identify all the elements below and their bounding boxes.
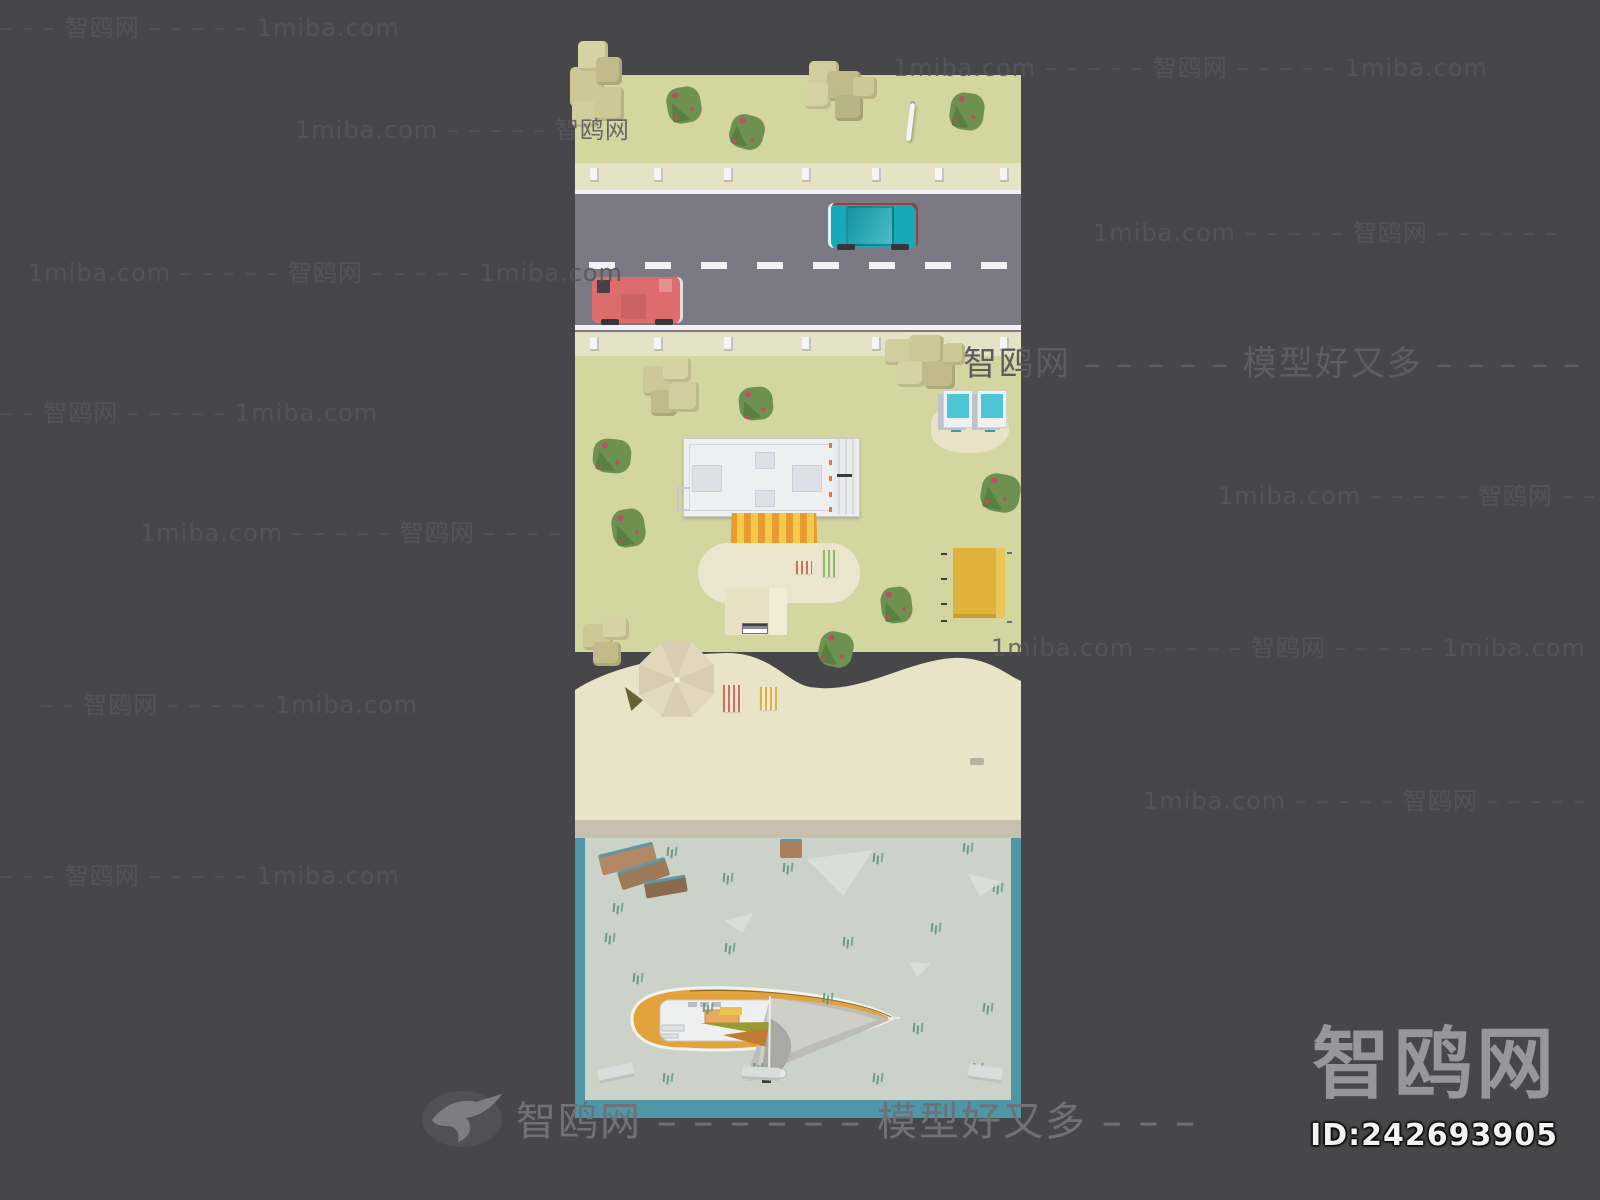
sparkle-cross <box>727 607 736 616</box>
green-bush <box>592 437 633 474</box>
shoreline-band <box>575 820 1021 838</box>
site-logo-text: 智鸥网 <box>1310 1026 1558 1104</box>
sparkle-cross <box>597 599 606 608</box>
sparkle-cross <box>977 595 986 604</box>
stall-ticks-right <box>1007 552 1012 554</box>
sparkle-cross <box>633 491 642 500</box>
sparkle-cross <box>985 665 994 674</box>
sparkle-cross <box>671 135 680 144</box>
towel-red <box>796 561 812 574</box>
sparkle-cross <box>695 581 704 590</box>
watermark-row: 1miba.com – – – – – 智鸥网 – – – – – – <box>1093 213 1558 248</box>
tan-box-tree <box>805 83 831 109</box>
sand-debris <box>970 758 984 765</box>
house-table-right <box>792 465 822 492</box>
beach-scene-render <box>575 75 1021 1118</box>
tan-box-tree <box>669 382 699 412</box>
water-border-left <box>575 838 585 1118</box>
sparkle-cross <box>673 651 682 660</box>
sparkle-cross <box>679 527 688 536</box>
house-table-mid-bottom <box>755 490 775 507</box>
watermark-row-large: 智鸥网 – – – – – 模型好又多 – – – – – <box>963 336 1582 385</box>
tan-box-tree <box>593 642 621 666</box>
tan-box-tree <box>897 361 925 387</box>
teal-car <box>828 203 918 248</box>
sparkle-cross <box>885 95 894 104</box>
sidewalk-bollard <box>590 168 599 180</box>
house-table-left <box>692 465 722 492</box>
road-center-dashed-line <box>589 262 1013 269</box>
sparkle-cross <box>1009 417 1018 426</box>
sparkle-cross <box>585 687 594 696</box>
sidewalk-bollard <box>872 168 881 180</box>
sparkle-cross <box>907 647 916 656</box>
tan-box-tree <box>594 87 624 121</box>
sparkle-cross <box>765 675 774 684</box>
seagull-icon <box>420 1088 504 1148</box>
sparkle-cross <box>630 93 639 102</box>
footer-watermark-text: 智鸥网 – – – – – – 模型好又多 – – – <box>516 1089 1197 1147</box>
sidewalk-bollard <box>935 168 944 180</box>
sidewalk-bollard <box>724 168 733 180</box>
sparkle-cross <box>771 105 780 114</box>
sparkle-cross <box>905 405 914 414</box>
watermark-row: 1miba.com – – – – – 智鸥网 – – – – – 1miba.… <box>991 628 1586 663</box>
road-edge-line-bottom <box>575 325 1021 330</box>
tan-box-tree <box>663 358 691 382</box>
water-border-right <box>1011 838 1021 1118</box>
beach-towel-yellow <box>760 687 778 710</box>
sidewalk-bollard <box>802 337 811 349</box>
stall-ticks-left <box>941 553 947 555</box>
site-logo-block: 智鸥网 ID:242693905 <box>1310 1026 1558 1153</box>
spa-pool-right <box>977 390 1007 428</box>
watermark-row: – – 智鸥网 – – – – – 1miba.com <box>0 393 378 428</box>
sparkle-cross <box>825 523 834 532</box>
sparkle-cross <box>995 103 1004 112</box>
dock-pontoon <box>742 1066 781 1081</box>
sparkle-cross <box>965 137 974 146</box>
green-bush <box>879 585 914 624</box>
sidewalk-bollard <box>724 337 733 349</box>
sparkle-cross <box>911 491 920 500</box>
sidewalk-bollard <box>1000 337 1009 349</box>
sparkle-cross <box>605 545 614 554</box>
watermark-row: 1miba.com – – – – – 智鸥网 – – <box>1218 476 1596 511</box>
sparkle-cross <box>931 121 940 130</box>
house-hinge-marks <box>829 443 832 448</box>
tan-box-tree <box>925 361 955 389</box>
road-edge-line-top <box>575 190 1021 194</box>
watermark-row: 1miba.com – – – – – 智鸥网 – – – – <box>140 513 561 548</box>
sparkle-cross <box>671 441 680 450</box>
watermark-row: – – – 智鸥网 – – – – – 1miba.com <box>0 8 400 43</box>
tan-box-tree <box>853 77 877 99</box>
towel-green <box>823 550 838 577</box>
house-side-step <box>677 487 690 511</box>
spa-pool-left <box>943 390 973 428</box>
sidewalk-upper <box>575 163 1021 190</box>
sparkle-cross <box>723 367 732 376</box>
sidewalk-bollard <box>872 337 881 349</box>
tan-box-tree <box>943 343 965 365</box>
house-table-mid-top <box>755 452 775 469</box>
door-bar <box>837 474 852 477</box>
sparkle-cross <box>821 455 830 464</box>
sidewalk-bollard <box>590 337 599 349</box>
watermark-row: – – – 智鸥网 – – – – – 1miba.com <box>0 856 400 891</box>
sparkle-cross <box>837 377 846 386</box>
model-preview-page: 智鸥网 – – – – – 模型好又多 – – – – – – – – 智鸥网 … <box>0 0 1600 1200</box>
sidewalk-bollard <box>654 337 663 349</box>
sparkle-cross <box>901 623 910 632</box>
sparkle-cross <box>605 367 614 376</box>
red-car <box>592 277 683 323</box>
sparkle-cross <box>815 119 824 128</box>
sparkle-cross <box>799 595 808 604</box>
watermark-row: – – 智鸥网 – – – – – 1miba.com <box>40 685 418 720</box>
tan-box-tree <box>596 57 622 85</box>
sparkle-cross <box>945 687 954 696</box>
green-bush <box>738 386 775 422</box>
driftwood-rock <box>780 842 802 858</box>
model-id: ID:242693905 <box>1310 1118 1558 1153</box>
kiosk-sign <box>742 623 768 634</box>
sidewalk-bollard <box>654 168 663 180</box>
footer-watermark: 智鸥网 – – – – – – 模型好又多 – – – <box>420 1088 1197 1148</box>
sparkle-cross <box>973 361 982 370</box>
sidewalk-bollard <box>802 168 811 180</box>
watermark-row: 1miba.com – – – – – 智鸥网 – – – – – 1miba.… <box>28 253 623 288</box>
sparkle-cross <box>613 665 622 674</box>
sparkle-cross <box>999 515 1008 524</box>
sidewalk-bollard <box>1000 168 1009 180</box>
yellow-stall <box>953 548 1005 618</box>
sparkle-cross <box>931 531 940 540</box>
beach-towel-red <box>723 685 742 712</box>
sparkle-cross <box>873 559 882 568</box>
sparkle-cross <box>641 577 650 586</box>
watermark-row: 1miba.com – – – – – 智鸥网 – – – – – <box>1143 781 1586 816</box>
tan-box-tree <box>603 618 629 640</box>
